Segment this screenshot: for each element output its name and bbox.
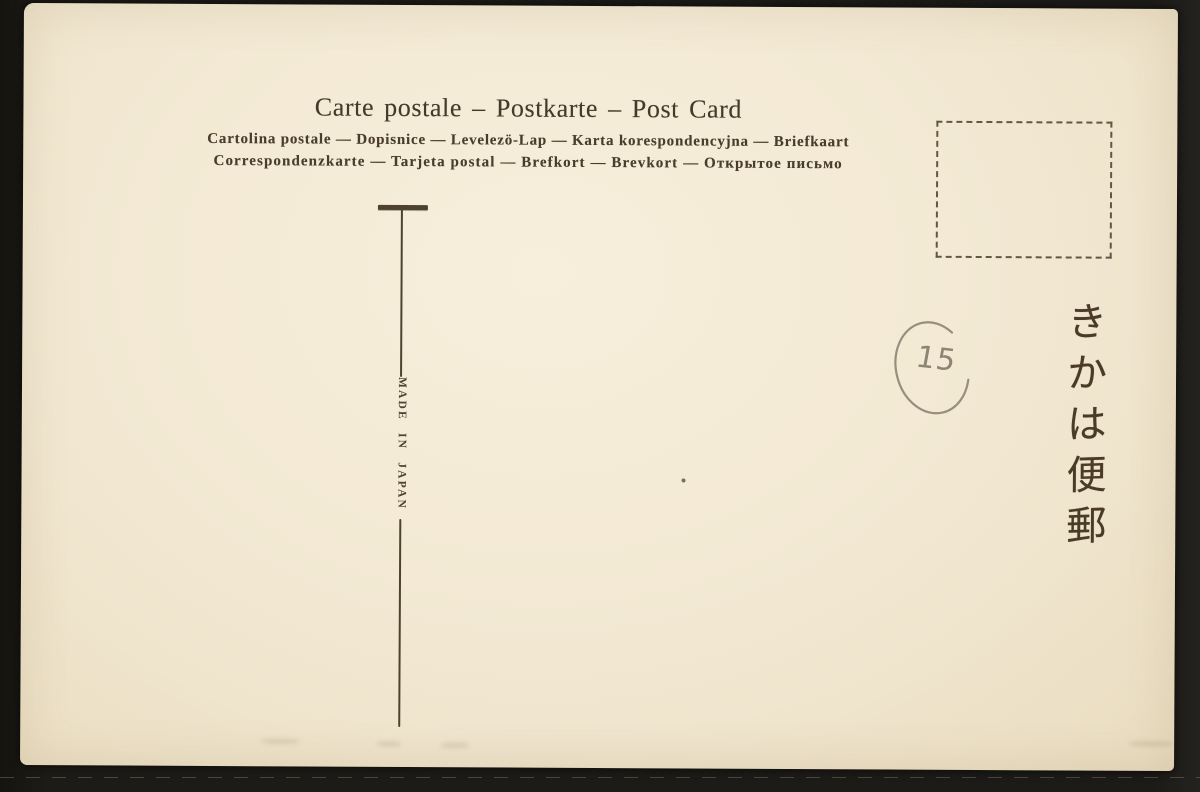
stamp-box (936, 121, 1113, 259)
postcard: Carte postale – Postkarte – Post Card Ca… (20, 3, 1178, 771)
paper-smudge (260, 738, 300, 744)
scan-background: Carte postale – Postkarte – Post Card Ca… (0, 0, 1200, 792)
paper-smudge (440, 742, 470, 748)
made-in-japan-text: MADE IN JAPAN (394, 377, 409, 510)
divider-line-lower (398, 519, 401, 727)
language-line-2: Correspondenzkarte — Tarjeta postal — Br… (113, 149, 943, 175)
pencil-annotation: 15 (884, 315, 995, 426)
divider-line-upper (400, 209, 403, 377)
japanese-vertical-text: きかは便郵 (1059, 300, 1113, 588)
pencil-number: 15 (913, 340, 959, 379)
paper-smudge (376, 741, 402, 747)
paper-speck (682, 478, 686, 482)
paper-smudge (1128, 741, 1174, 747)
postcard-header: Carte postale – Postkarte – Post Card Ca… (113, 91, 943, 175)
scan-dust-line (0, 777, 1200, 778)
postcard-heading: Carte postale – Postkarte – Post Card (113, 91, 943, 125)
